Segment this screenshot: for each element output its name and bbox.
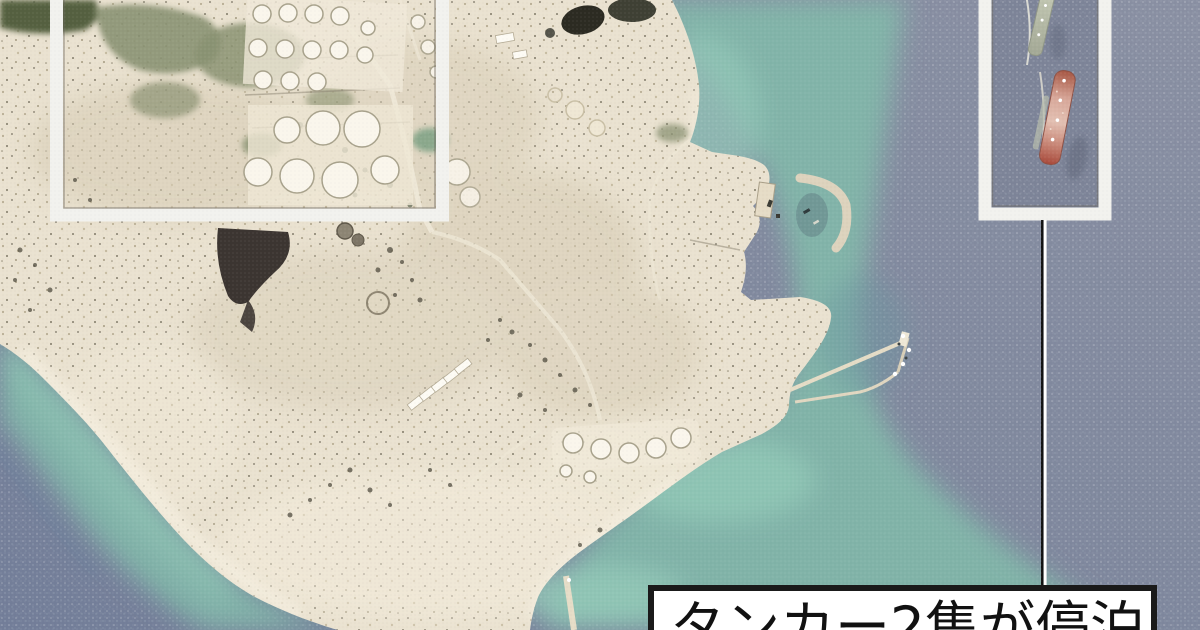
satellite-photo (0, 0, 1200, 630)
halftone-overlay (0, 0, 1200, 630)
news-graphic-canvas: タンカー2隻が停泊 (0, 0, 1200, 630)
caption-box: タンカー2隻が停泊 (648, 585, 1157, 630)
caption-text: タンカー2隻が停泊 (670, 595, 1145, 630)
